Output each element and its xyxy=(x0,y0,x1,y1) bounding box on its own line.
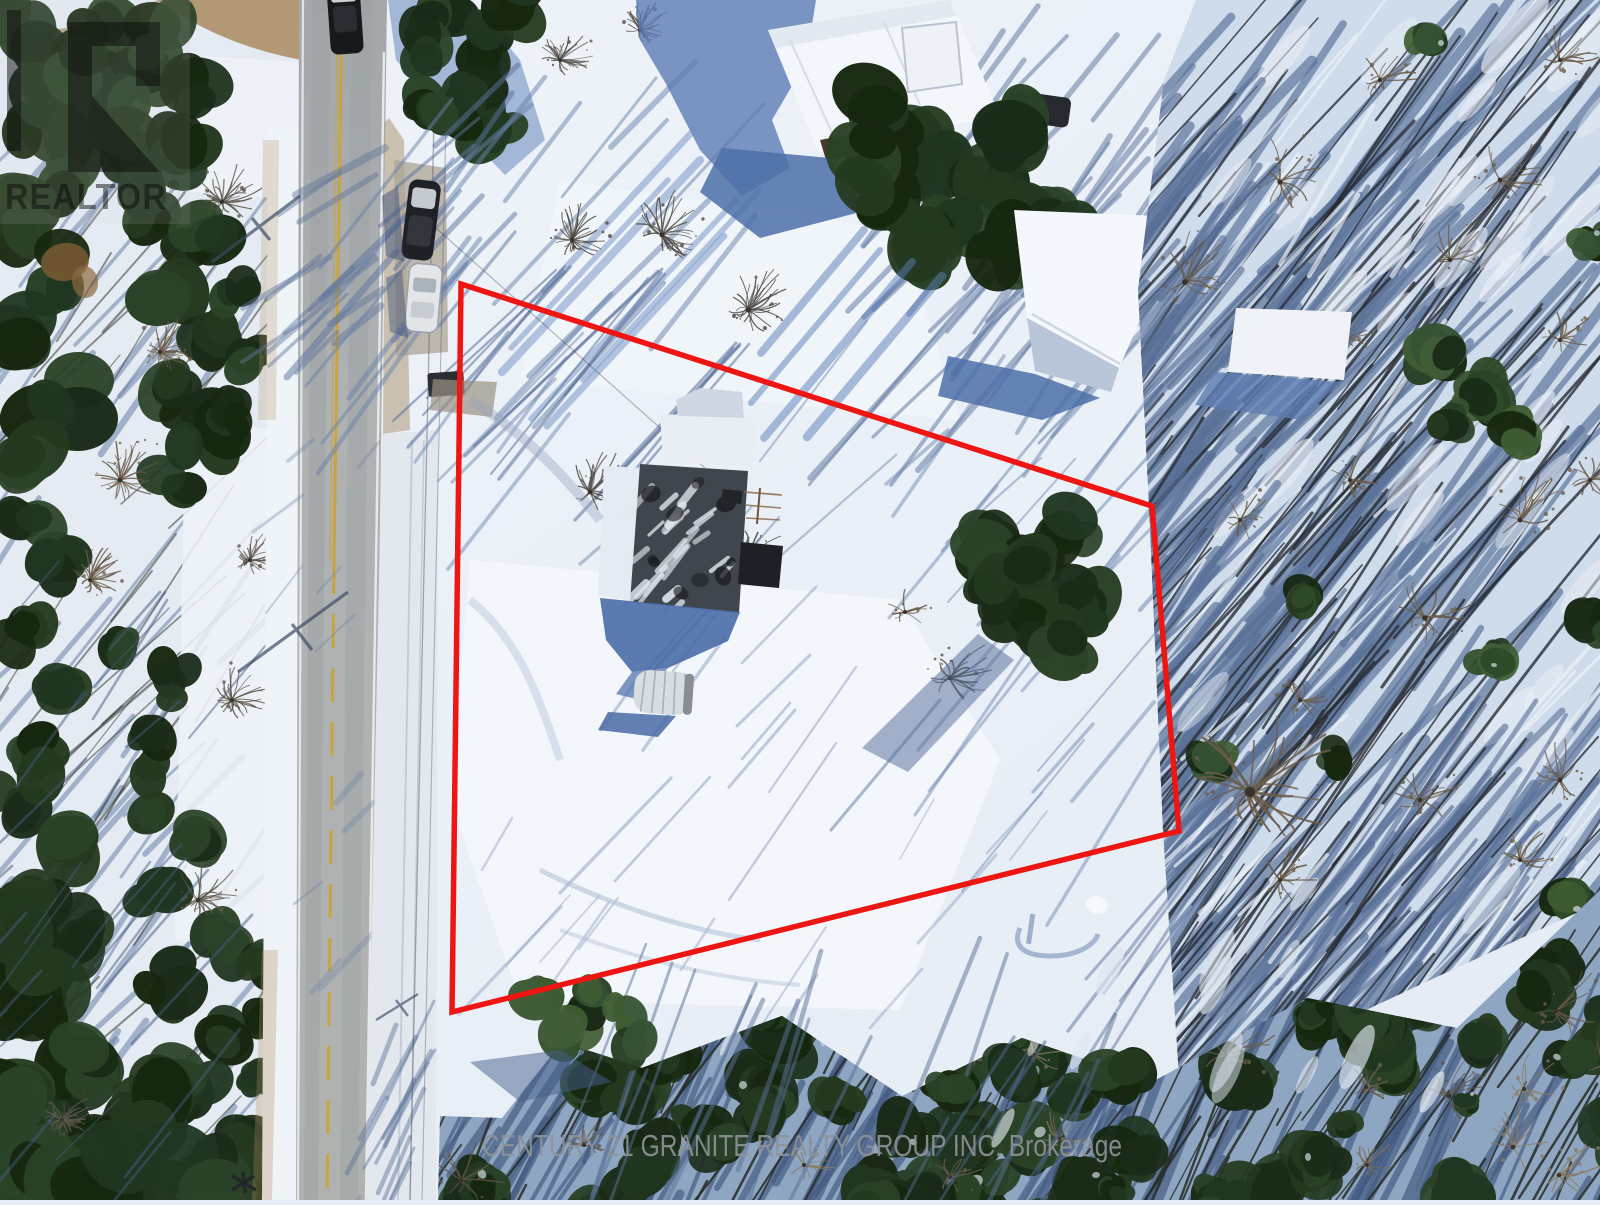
svg-text:REALTOR: REALTOR xyxy=(5,176,167,217)
svg-text:®: ® xyxy=(168,177,179,193)
svg-text:CENTURY 21 GRANITE REALTY GROU: CENTURY 21 GRANITE REALTY GROUP INC. Bro… xyxy=(482,1128,1122,1163)
